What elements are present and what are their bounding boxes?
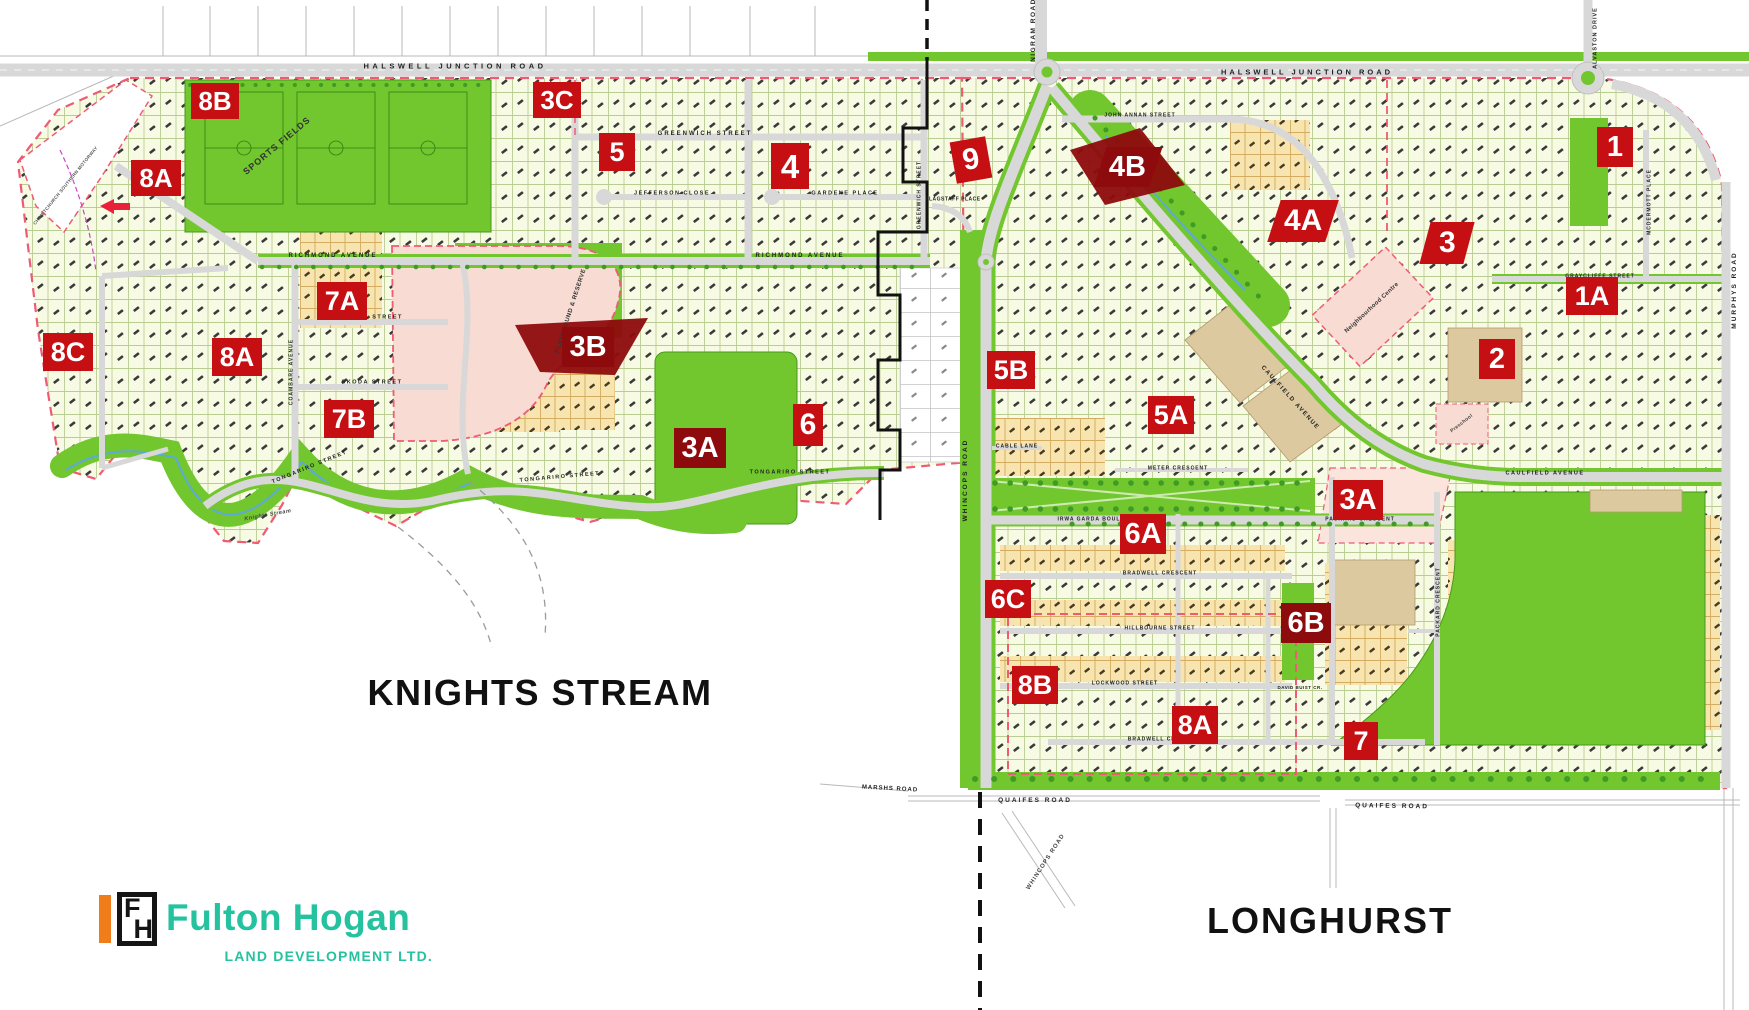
stage-marker-label: 1 bbox=[1607, 133, 1623, 162]
stage-marker-label: 8A bbox=[220, 344, 255, 371]
stage-marker-label: 3 bbox=[1439, 228, 1456, 258]
stage-marker-label: 4B bbox=[1109, 153, 1146, 182]
label-whincops-road: WHINCOPS ROAD bbox=[963, 439, 970, 522]
label-caulfield-avenue-e: CAULFIELD AVENUE bbox=[1506, 471, 1585, 477]
stage-marker-2: 2 bbox=[1479, 339, 1515, 379]
stage-marker-6: 6 bbox=[793, 404, 823, 446]
stage-marker-label: 3A bbox=[681, 434, 718, 463]
label-alvaston-drive: ALVASTON DRIVE bbox=[1593, 7, 1599, 69]
label-packard-crescent-v: PACKARD CRESCENT bbox=[1437, 567, 1442, 637]
label-murphys-road: MURPHYS ROAD bbox=[1732, 251, 1739, 328]
label-john-annan-street: JOHN ANNAN STREET bbox=[1104, 114, 1175, 119]
stage-marker-8a-lh: 8A bbox=[1172, 706, 1218, 744]
label-halswell-junction-road-e: HALSWELL JUNCTION ROAD bbox=[1221, 68, 1393, 76]
label-halswell-junction-road-w: HALSWELL JUNCTION ROAD bbox=[363, 62, 546, 70]
label-hillbourne-street: HILLBOURNE STREET bbox=[1125, 627, 1196, 632]
label-knights-stream-title: KNIGHTS STREAM bbox=[368, 675, 713, 711]
stage-marker-1a: 1A bbox=[1566, 277, 1618, 315]
label-greenwich-street-v: GREENWICH STREET bbox=[918, 161, 923, 229]
stage-marker-4: 4 bbox=[771, 143, 809, 189]
stage-marker-5b: 5B bbox=[987, 351, 1035, 389]
stage-marker-label: 6A bbox=[1124, 520, 1161, 549]
stage-marker-8c: 8C bbox=[43, 333, 93, 371]
label-greenwich-street: GREENWICH STREET bbox=[658, 131, 753, 137]
stage-marker-8b-ks: 8B bbox=[191, 83, 239, 119]
logo-letter-h: H bbox=[134, 914, 154, 945]
label-jefferson-close: JEFFERSON CLOSE bbox=[634, 191, 710, 197]
label-nigram-road: NIGRAM ROAD bbox=[1031, 0, 1038, 62]
stage-marker-label: 3C bbox=[540, 87, 573, 113]
stage-marker-label: 7B bbox=[332, 406, 367, 433]
stage-marker-7: 7 bbox=[1344, 722, 1378, 760]
stage-marker-label: 8C bbox=[51, 339, 86, 366]
stage-marker-6b: 6B bbox=[1281, 603, 1331, 643]
label-flagstaff-place: FLAGSTAFF PLACE bbox=[925, 198, 980, 203]
stage-marker-label: 8B bbox=[1018, 672, 1053, 699]
label-gardene-place: GARDENE PLACE bbox=[811, 191, 878, 197]
stage-marker-9: 9 bbox=[950, 136, 993, 184]
label-richmond-avenue-w: RICHMOND AVENUE bbox=[288, 253, 377, 259]
logo-orange-bar bbox=[99, 895, 111, 943]
stage-marker-8b-lh: 8B bbox=[1012, 666, 1058, 704]
stage-marker-label: 3B bbox=[569, 333, 606, 362]
stage-marker-label: 3A bbox=[1339, 486, 1376, 515]
stage-marker-label: 4 bbox=[781, 150, 799, 183]
stage-marker-3b: 3B bbox=[562, 327, 614, 367]
label-quaifes-road-w: QUAIFES ROAD bbox=[998, 798, 1072, 805]
logo-brand-text: Fulton Hogan bbox=[166, 897, 410, 939]
stage-marker-label: 6C bbox=[991, 586, 1026, 613]
stage-marker-7b: 7B bbox=[324, 400, 374, 438]
label-tongariro-street-e: TONGARIRO STREET bbox=[750, 470, 831, 476]
label-coambare-avenue: COAMBARE AVENUE bbox=[290, 339, 295, 405]
logo-subtitle-text: LAND DEVELOPMENT LTD. bbox=[225, 948, 434, 964]
stage-marker-label: 5A bbox=[1154, 402, 1189, 429]
label-richmond-avenue-e: RICHMOND AVENUE bbox=[755, 253, 844, 259]
stage-marker-label: 8A bbox=[1178, 712, 1213, 739]
label-quaifes-road-e: QUAIFES ROAD bbox=[1355, 803, 1429, 811]
label-lockwood-street: LOCKWOOD STREET bbox=[1092, 682, 1158, 687]
stage-marker-1: 1 bbox=[1597, 127, 1633, 167]
stage-marker-3a-ks: 3A bbox=[674, 428, 726, 468]
stage-marker-8a-nw: 8A bbox=[131, 160, 181, 196]
stage-marker-label: 1A bbox=[1575, 283, 1610, 310]
stage-marker-label: 6B bbox=[1287, 609, 1324, 638]
label-longhurst-title: LONGHURST bbox=[1207, 903, 1453, 939]
stage-marker-3a-lh: 3A bbox=[1333, 480, 1383, 520]
stage-marker-label: 5 bbox=[609, 139, 624, 166]
future-lots-area bbox=[900, 268, 962, 462]
label-meter-crescent: METER CRESCENT bbox=[1148, 467, 1208, 472]
stage-marker-5a: 5A bbox=[1148, 396, 1194, 434]
label-skoda-street: SKODA STREET bbox=[342, 380, 403, 386]
label-mcdermott-place: MCDERMOTT PLACE bbox=[1648, 169, 1653, 235]
stage-marker-label: 6 bbox=[800, 410, 817, 440]
stage-marker-7a: 7A bbox=[317, 282, 367, 320]
stage-marker-5: 5 bbox=[599, 133, 635, 171]
label-bradwell-crescent-n: BRADWELL CRESCENT bbox=[1123, 572, 1197, 577]
label-david-buist-crescent: DAVID BUIST CR. bbox=[1278, 686, 1323, 691]
stage-marker-label: 8A bbox=[139, 165, 172, 191]
stage-marker-6a: 6A bbox=[1120, 514, 1166, 554]
stage-marker-6c: 6C bbox=[985, 580, 1031, 618]
stage-marker-3c: 3C bbox=[533, 82, 581, 118]
stage-marker-label: 7 bbox=[1353, 728, 1368, 755]
stage-marker-label: 7A bbox=[325, 288, 360, 315]
stage-marker-label: 9 bbox=[960, 144, 982, 176]
stage-marker-label: 2 bbox=[1489, 345, 1505, 374]
fulton-hogan-icon: F H bbox=[117, 892, 157, 946]
stage-marker-label: 4A bbox=[1284, 206, 1322, 236]
label-cable-lane: CABLE LANE bbox=[996, 445, 1038, 450]
stage-marker-label: 5B bbox=[994, 357, 1029, 384]
stage-marker-8a-w: 8A bbox=[212, 338, 262, 376]
stage-marker-label: 8B bbox=[198, 88, 231, 114]
